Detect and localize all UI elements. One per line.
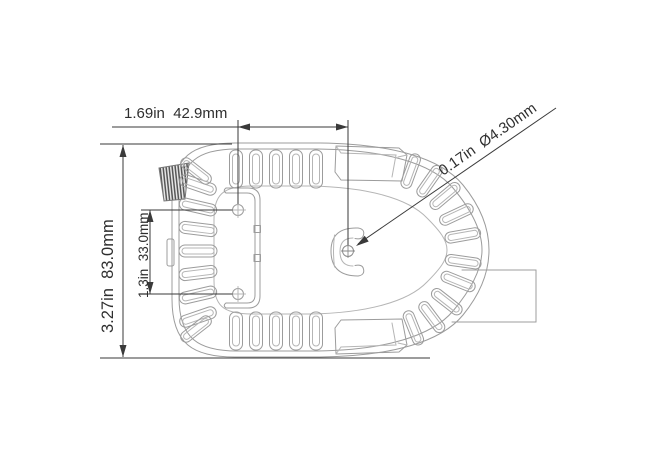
left-edge-tab (167, 239, 174, 266)
strainer-slot (310, 150, 323, 188)
strainer-slot-inner (313, 154, 320, 184)
strainer-slot-inner (253, 154, 260, 184)
technical-drawing-canvas: 1.69in 42.9mm 0.17in Ø4.30mm 3.27in 83.0… (0, 0, 666, 463)
strainer-slot (178, 221, 217, 238)
center-bracket (331, 228, 364, 276)
strainer-slot-inner (182, 268, 214, 278)
arrowhead-right (336, 124, 348, 131)
mounting-hole-top (231, 203, 246, 218)
pump-drawing-svg: 1.69in 42.9mm 0.17in Ø4.30mm 3.27in 83.0… (0, 0, 666, 463)
bottom-vent-opening (335, 319, 407, 354)
strainer-slot (428, 180, 463, 212)
arrowhead-down (120, 345, 127, 357)
strainer-slot (290, 312, 303, 350)
strainer-slot-inner (432, 184, 459, 208)
strainer-slot (444, 227, 481, 244)
dimension-label-overall-height: 3.27in 83.0mm (99, 219, 117, 333)
dimension-label-hole-spacing: 1.3in 33.0mm (136, 212, 151, 298)
strainer-slot-inner (182, 200, 215, 213)
strainer-slot-inner (233, 316, 240, 346)
center-hole (341, 244, 355, 258)
strainer-slot-inner (182, 248, 214, 254)
arrowhead-up (120, 145, 127, 157)
dimension-hole-diameter: 0.17in Ø4.30mm (356, 100, 556, 246)
strainer-slot (270, 312, 283, 350)
strainer-slot-inner (293, 316, 300, 346)
strainer-slot (429, 286, 464, 317)
top-slots (230, 150, 323, 188)
strainer-slot (399, 152, 422, 190)
strainer-slot (179, 245, 217, 257)
bottom-slots (230, 312, 323, 350)
strainer-slot-inner (182, 224, 214, 234)
strainer-slot (230, 150, 243, 188)
strainer-slot-inner (293, 154, 300, 184)
dimension-label-top-width: 1.69in 42.9mm (124, 105, 227, 122)
strainer-slot (178, 314, 213, 345)
strainer-slot-inner (182, 288, 215, 301)
strainer-slot (230, 312, 243, 350)
pump-center-ring (214, 186, 447, 314)
strainer-slot (445, 254, 482, 270)
arrowhead-left (238, 124, 250, 131)
strainer-slot-inner (273, 316, 280, 346)
strainer-slot (250, 312, 263, 350)
strainer-slot (310, 312, 323, 350)
mounting-hole-bottom (231, 287, 246, 302)
dimension-label-hole-diameter: 0.17in Ø4.30mm (436, 100, 540, 180)
strainer-slot-inner (448, 257, 479, 267)
strainer-slot (439, 270, 476, 294)
strainer-slot (438, 202, 475, 227)
strainer-slot (402, 309, 426, 346)
strainer-slot-inner (313, 316, 320, 346)
top-vent-opening (335, 146, 407, 181)
strainer-slot (178, 265, 217, 282)
strainer-slot-inner (273, 154, 280, 184)
right-radial-slots (399, 152, 481, 346)
strainer-slot-inner (253, 316, 260, 346)
strainer-slot (270, 150, 283, 188)
strainer-slot (290, 150, 303, 188)
strainer-slot (250, 150, 263, 188)
pump-inner-rim (179, 149, 482, 351)
